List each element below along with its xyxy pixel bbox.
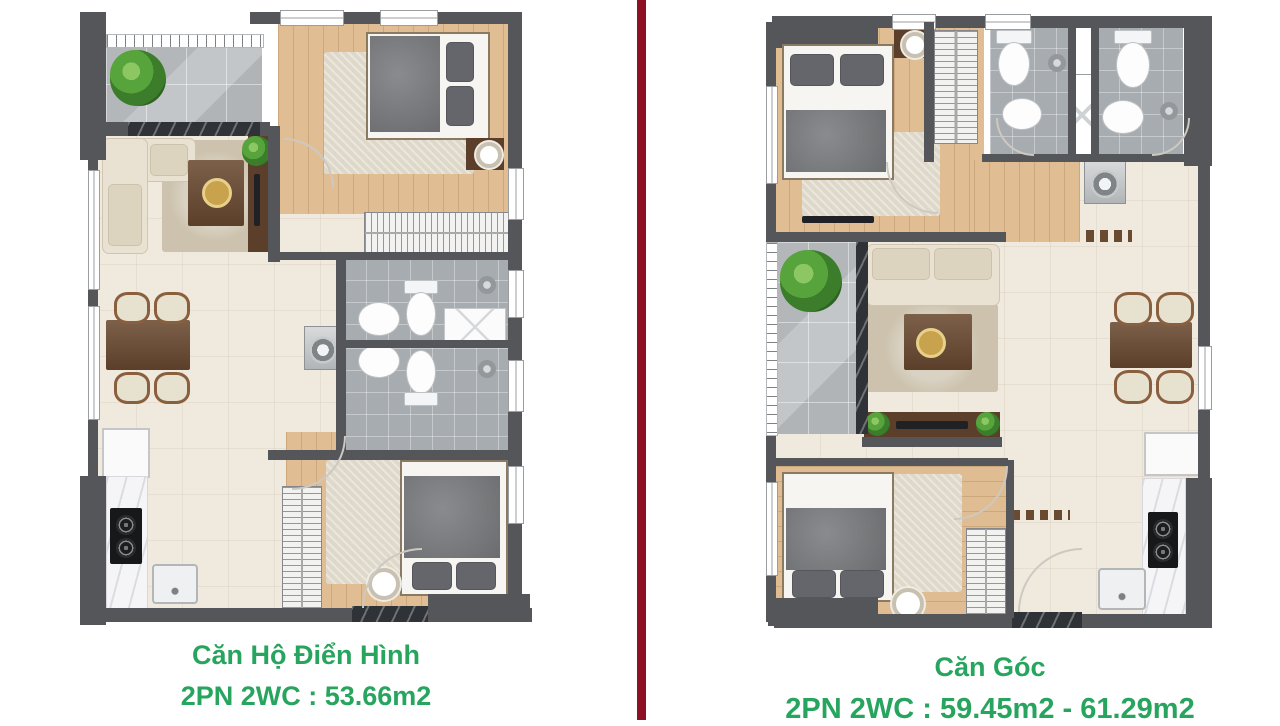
column-top-left <box>80 12 106 160</box>
bedroom1-wardrobe <box>364 212 510 254</box>
dining-chair <box>1156 292 1194 326</box>
burner-icon <box>116 515 136 535</box>
wall-right <box>1198 164 1210 480</box>
cooktop <box>110 508 142 564</box>
caption-typical-unit: Căn Hộ Điển Hình 2PN 2WC : 53.66m2 <box>80 640 532 712</box>
plan-spec: 2PN 2WC : 59.45m2 - 61.29m2 <box>726 693 1254 726</box>
balcony-threshold <box>856 242 868 434</box>
console-plant-icon <box>976 412 1000 436</box>
plan-spec: 2PN 2WC : 53.66m2 <box>80 681 532 712</box>
toilet <box>998 42 1030 86</box>
plan-title: Căn Góc <box>726 652 1254 683</box>
wall-bath1-shaft <box>1068 26 1076 154</box>
bedroom2-wardrobe <box>966 528 1006 618</box>
window <box>985 14 1031 30</box>
wall-top <box>772 16 1184 28</box>
shower-head-icon <box>478 360 496 378</box>
hall-wood-floor <box>974 160 1080 242</box>
wall-above-bedroom2 <box>774 458 1008 466</box>
dining-table <box>106 320 190 370</box>
window <box>766 482 778 576</box>
window <box>508 270 524 318</box>
window <box>88 170 100 290</box>
bed-pillow <box>840 570 884 598</box>
bedroom1-bed <box>782 44 894 180</box>
burner-icon <box>1153 519 1173 539</box>
wall-corridor-bath <box>336 258 346 458</box>
toilet <box>1116 42 1150 88</box>
window <box>380 10 438 26</box>
bed-pillow <box>790 54 834 86</box>
balcony-railing <box>766 242 778 436</box>
sofa-cushion <box>108 184 142 246</box>
kitchen-sink <box>152 564 198 604</box>
shower-head-icon <box>1048 54 1066 72</box>
window <box>508 168 524 220</box>
burner-icon <box>1153 542 1173 562</box>
bedroom1-wardrobe <box>934 30 978 144</box>
wall-bedroom1-living <box>772 232 1006 242</box>
dining-chair <box>154 292 190 324</box>
sofa-cushion <box>872 248 930 280</box>
bed-pillow <box>446 86 474 126</box>
plan-title: Căn Hộ Điển Hình <box>80 640 532 671</box>
dining-chair <box>1114 292 1152 326</box>
window <box>508 360 524 412</box>
entry-threshold <box>352 606 430 622</box>
window <box>1198 346 1212 410</box>
coffee-table-tray <box>916 328 946 358</box>
bed-pillow <box>446 42 474 82</box>
wall-bedroom2-kitchen <box>1006 460 1014 618</box>
balcony-plant-icon <box>110 50 166 106</box>
bathroom-sink <box>1102 100 1144 134</box>
wall-living-bedroom1 <box>268 126 280 262</box>
bedroom2-wardrobe <box>282 486 322 610</box>
kitchen-cabinet-row <box>1012 510 1070 520</box>
toilet <box>406 350 436 394</box>
wall-segment <box>106 122 128 136</box>
shower-head-icon <box>478 276 496 294</box>
wall-below-living <box>862 437 1002 447</box>
burner-icon <box>116 538 136 558</box>
console-plant-icon <box>866 412 890 436</box>
dining-chair <box>154 372 190 404</box>
wall-bedroom1-hall <box>924 22 934 162</box>
column-bottom-left <box>80 476 106 625</box>
bathroom-sink <box>358 344 400 378</box>
window <box>88 306 100 420</box>
wall-shaft-bath2 <box>1091 26 1099 154</box>
coffee-table-tray <box>202 178 232 208</box>
bedroom1-bed <box>366 32 490 140</box>
wall-below-wardrobe <box>268 252 522 260</box>
balcony-plant-icon <box>780 250 842 312</box>
wall-between-baths <box>344 340 522 348</box>
tv-icon <box>802 216 874 223</box>
floor-plan-typical-unit <box>80 8 532 625</box>
lamp-icon <box>476 142 502 168</box>
window <box>766 86 778 184</box>
vertical-divider <box>637 0 646 720</box>
floor-plan-corner-unit <box>766 14 1214 630</box>
cooktop <box>1148 512 1178 568</box>
column-top-right <box>1184 16 1212 166</box>
sofa-cushion <box>150 144 188 176</box>
bedroom2-bed <box>782 472 894 602</box>
bed-pillow <box>456 562 496 590</box>
bed-blanket <box>404 476 500 558</box>
washing-machine <box>1084 160 1126 204</box>
entry-threshold <box>1012 612 1082 628</box>
window <box>508 466 524 524</box>
window <box>280 10 344 26</box>
kitchen-sink <box>1098 568 1146 610</box>
bed-blanket <box>786 110 886 172</box>
bed-blanket <box>370 36 440 132</box>
tv-icon <box>254 174 260 226</box>
shoe-cabinet <box>1086 230 1132 242</box>
fridge <box>102 428 150 478</box>
toilet <box>406 292 436 336</box>
toilet-tank <box>404 392 438 406</box>
caption-corner-unit: Căn Góc 2PN 2WC : 59.45m2 - 61.29m2 <box>726 652 1254 726</box>
fridge <box>1144 432 1200 476</box>
bed-pillow <box>792 570 836 598</box>
balcony-railing <box>106 34 264 48</box>
dining-chair <box>114 372 150 404</box>
bed-blanket <box>786 508 886 570</box>
balcony-threshold <box>128 122 260 136</box>
bedroom2-rug <box>888 474 962 592</box>
sofa-cushion <box>934 248 992 280</box>
tv-icon <box>896 421 968 429</box>
dining-chair <box>1156 370 1194 404</box>
column-kitchen <box>1186 478 1212 628</box>
bathroom-sink <box>358 302 400 336</box>
wall-segment <box>260 122 270 136</box>
dining-table <box>1110 322 1192 368</box>
dining-chair <box>114 292 150 324</box>
dining-chair <box>1114 370 1152 404</box>
wall-block-bedroom2 <box>768 598 878 626</box>
bed-pillow <box>840 54 884 86</box>
